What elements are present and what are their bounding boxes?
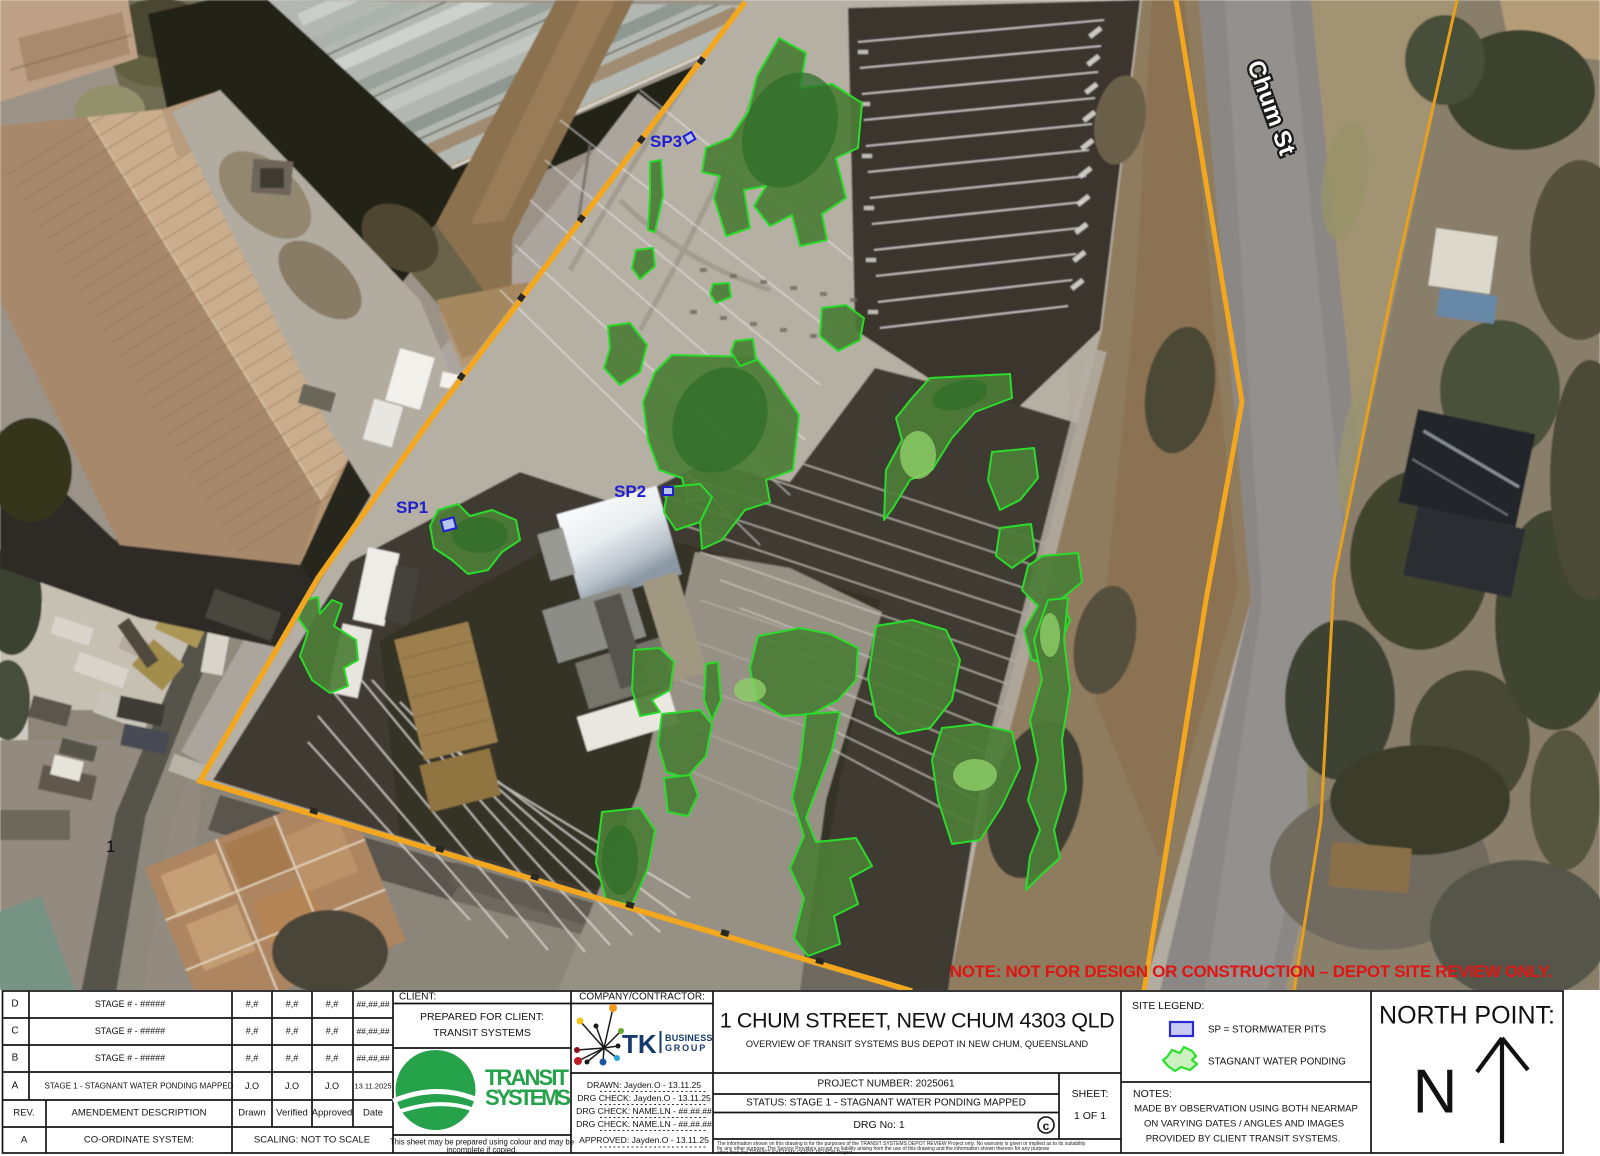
svg-text:SYSTEMS: SYSTEMS: [485, 1085, 571, 1110]
svg-text:GROUP: GROUP: [665, 1043, 707, 1053]
svg-text:c: c: [1043, 1119, 1050, 1133]
svg-text:TK: TK: [622, 1029, 657, 1059]
svg-text:BUSINESS: BUSINESS: [665, 1033, 713, 1043]
